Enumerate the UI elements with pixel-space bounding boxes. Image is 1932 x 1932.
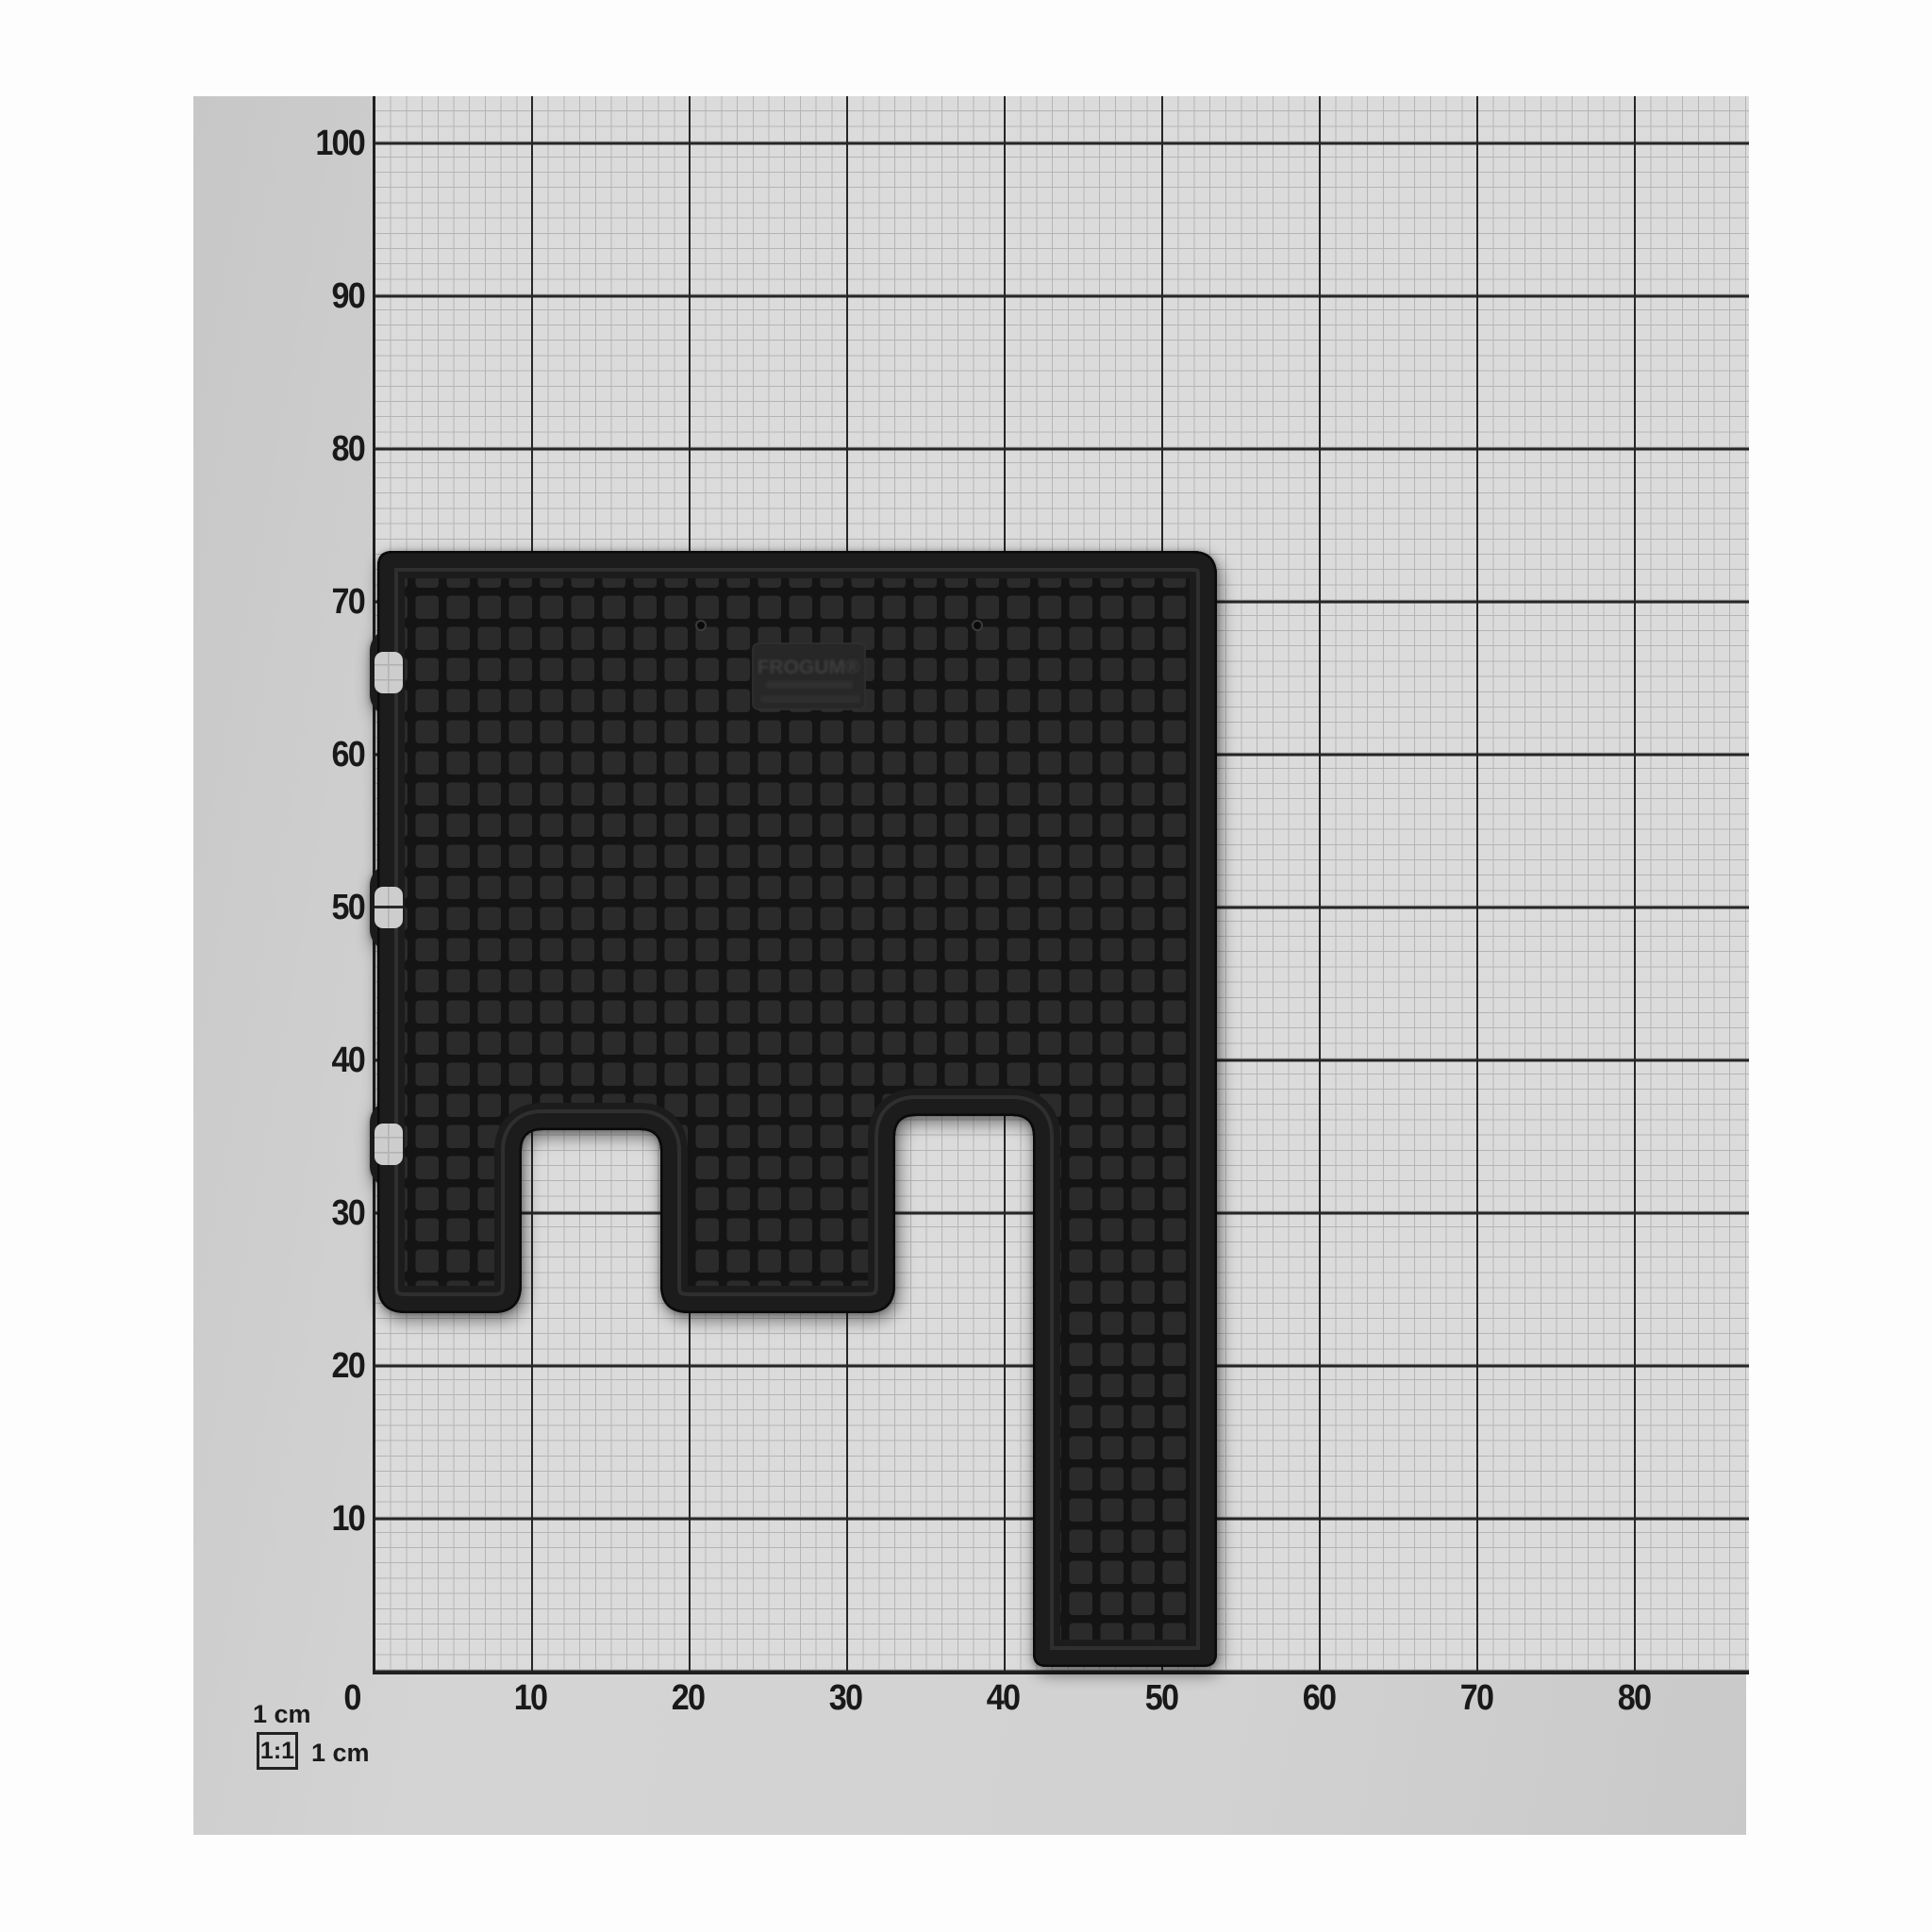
fixing-hole (973, 621, 982, 630)
hook-window (375, 652, 403, 693)
stamp-fine-print (760, 695, 860, 703)
hook-window (375, 1124, 403, 1165)
hook-window (375, 887, 403, 928)
brand-text: FROGUM® (758, 657, 860, 678)
stamp-fine-print (766, 681, 853, 689)
floor-mat: FROGUM® (0, 0, 1932, 1932)
brand-stamp: FROGUM® (753, 643, 865, 709)
product-photo: 100908070605040302010 01020304050607080 … (0, 0, 1932, 1932)
fixing-hole (696, 621, 706, 630)
mat-body: FROGUM® (370, 551, 1217, 1667)
waffle-texture (377, 551, 1217, 1667)
